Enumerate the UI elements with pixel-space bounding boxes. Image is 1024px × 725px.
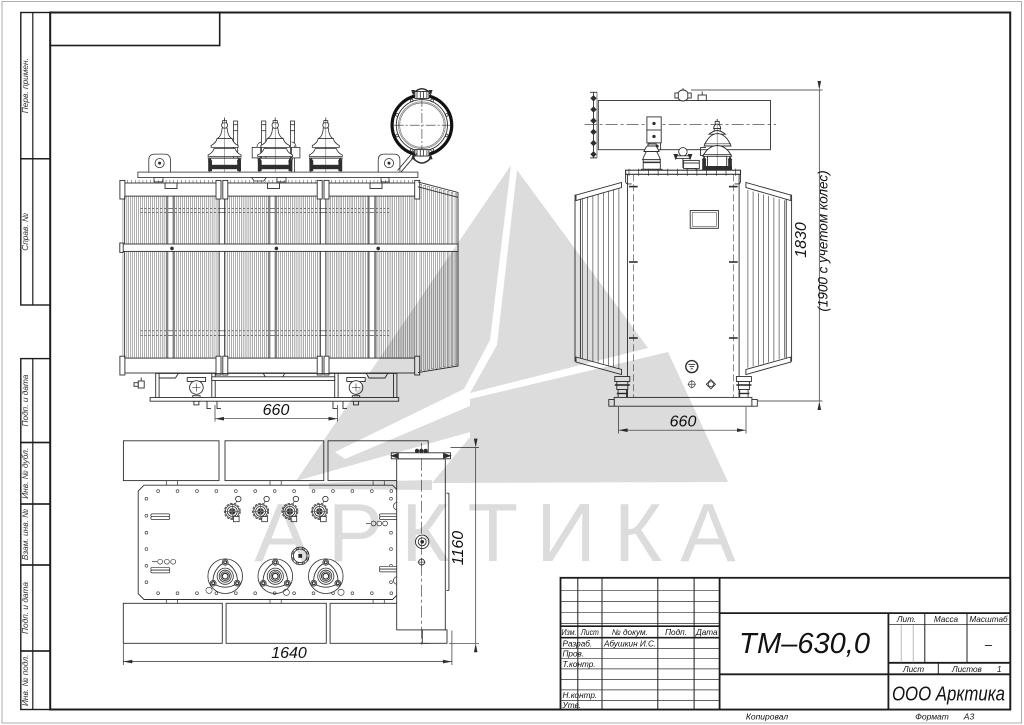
svg-text:№ докум.: № докум. [612,628,648,637]
svg-text:ТМ–630,0: ТМ–630,0 [739,628,870,660]
svg-text:Абушкин И.С.: Абушкин И.С. [603,640,656,649]
svg-text:Листов: Листов [951,665,983,674]
svg-text:1830: 1830 [793,222,810,258]
svg-text:1640: 1640 [271,645,307,662]
svg-text:Утв.: Утв. [562,701,582,710]
svg-text:Т.контр.: Т.контр. [563,660,596,669]
svg-text:Масса: Масса [934,615,959,624]
svg-text:Разраб.: Разраб. [563,640,593,649]
svg-text:Изм.: Изм. [562,628,577,637]
svg-text:Лит.: Лит. [896,615,916,624]
svg-text:–: – [984,637,993,652]
svg-text:Дата: Дата [695,628,718,637]
svg-text:Масштаб: Масштаб [969,615,1008,624]
svg-text:Взам. инв. №: Взам. инв. № [20,509,30,560]
svg-text:Подп.: Подп. [665,628,687,637]
svg-text:Подп. и дата: Подп. и дата [20,374,30,426]
svg-text:660: 660 [263,402,290,419]
svg-text:ООО Арктика: ООО Арктика [892,684,1005,706]
svg-text:Копировал: Копировал [746,712,788,722]
svg-text:Н.контр.: Н.контр. [563,691,598,700]
svg-text:1: 1 [997,665,1002,674]
svg-text:Пров.: Пров. [563,650,585,659]
svg-text:Инв. № подл.: Инв. № подл. [20,655,30,706]
svg-text:(1900 с учетом колес): (1900 с учетом колес) [816,170,831,311]
svg-text:Подп. и дата: Подп. и дата [20,582,30,634]
svg-text:АРКТИКА: АРКТИКА [254,486,753,579]
svg-text:Перв. примен.: Перв. примен. [20,58,30,113]
svg-text:Инв. № дубл.: Инв. № дубл. [20,448,30,499]
svg-text:Справ. №: Справ. № [20,213,30,251]
svg-text:Лист: Лист [902,665,924,674]
svg-text:Лист: Лист [580,628,599,637]
svg-text:Формат: Формат [915,712,949,722]
svg-text:А3: А3 [963,712,975,722]
